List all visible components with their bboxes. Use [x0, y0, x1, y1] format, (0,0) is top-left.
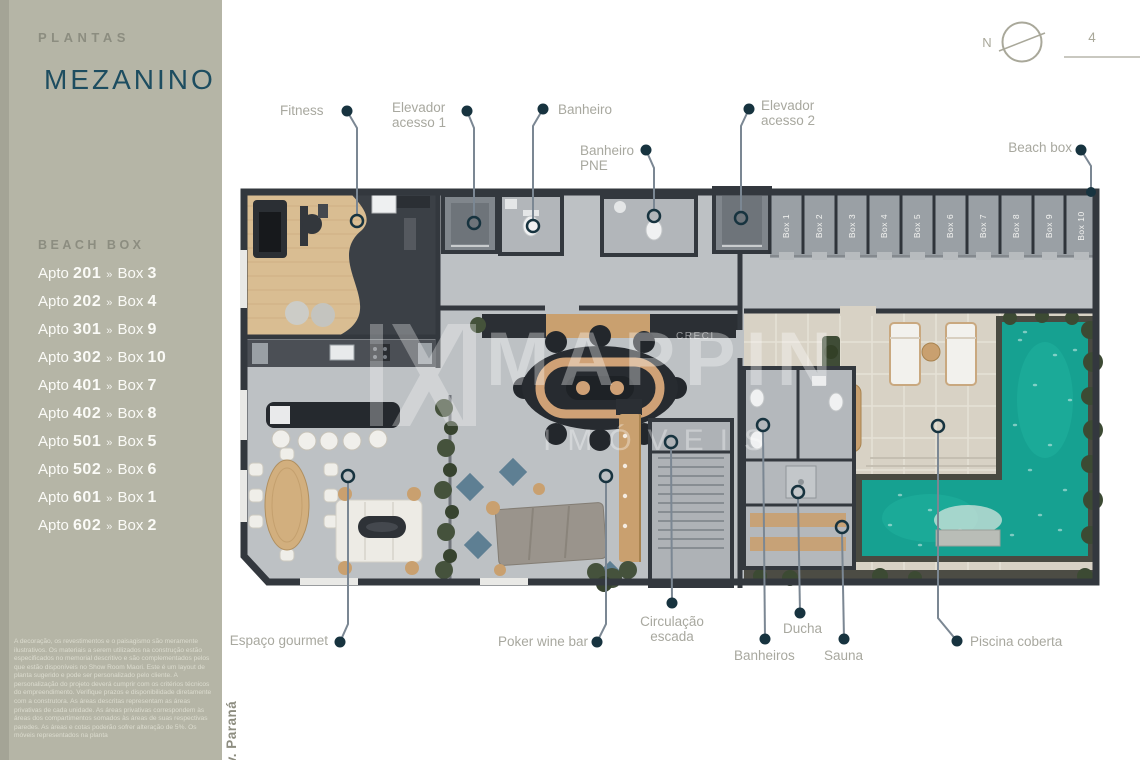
- lounge-sofa: [495, 502, 607, 565]
- leader-elevator2: [741, 109, 749, 213]
- elevator-2: [714, 188, 770, 252]
- beach-box-list: Apto 201 » Box 3Apto 202 » Box 4Apto 301…: [38, 260, 166, 540]
- wood-lounger: [843, 384, 861, 452]
- plan-label-elevator2: Elevador acesso 2: [761, 98, 815, 128]
- bar-stools: [272, 430, 387, 450]
- apto-list-item: Apto 402 » Box 8: [38, 400, 166, 428]
- apto-list-item: Apto 502 » Box 6: [38, 456, 166, 484]
- armchairs: [456, 458, 624, 589]
- plan-label-espaco-gourmet: Espaço gourmet: [225, 633, 328, 648]
- side-table: [922, 343, 940, 361]
- apto-list-item: Apto 302 » Box 10: [38, 344, 166, 372]
- plan-label-fitness: Fitness: [280, 103, 324, 118]
- beach-box-heading: BEACH BOX: [38, 238, 145, 252]
- box-stall-label: Box 8: [1011, 214, 1021, 238]
- toilet: [646, 220, 662, 240]
- sink: [614, 201, 626, 213]
- bar-counter: [266, 402, 400, 428]
- plan-label-banheiro: Banheiro: [558, 102, 612, 117]
- plan-label-poker-wine-bar: Poker wine bar: [490, 634, 588, 649]
- box-stall-label: Box 7: [978, 214, 988, 238]
- sun-lounger: [890, 323, 920, 385]
- plan-label-piscina: Piscina coberta: [970, 634, 1062, 649]
- pool-border: [856, 316, 1094, 562]
- fitness-room: [247, 192, 438, 368]
- apto-list-item: Apto 601 » Box 1: [38, 484, 166, 512]
- plants: [587, 561, 637, 592]
- exercise-ball: [285, 301, 309, 325]
- plan-label-beach-box: Beach box: [998, 140, 1072, 155]
- apto-list-item: Apto 501 » Box 5: [38, 428, 166, 456]
- plan-label-circulacao: Circulação escada: [630, 614, 714, 644]
- leader-ducha: [798, 498, 800, 613]
- plan-label-sauna: Sauna: [824, 648, 863, 663]
- apto-list-item: Apto 401 » Box 7: [38, 372, 166, 400]
- leader-banheiro: [533, 109, 543, 221]
- leader-sauna: [842, 533, 844, 639]
- plan-label-banheiros: Banheiros: [734, 648, 795, 663]
- plan-label-ducha: Ducha: [783, 621, 822, 636]
- sink: [505, 199, 517, 209]
- compass-n-label: N: [982, 35, 991, 50]
- dumbbell-rack: [386, 196, 430, 208]
- gourmet-kitchen-counter: [247, 340, 436, 367]
- page-number: 4: [1088, 30, 1096, 45]
- disclaimer-text: A decoração, os revestimentos e o paisag…: [14, 638, 212, 741]
- leader-banheiro-pne: [646, 150, 654, 211]
- elliptical-machine: [300, 206, 308, 246]
- exercise-ball: [311, 303, 335, 327]
- box-stall-label: Box 2: [814, 214, 824, 238]
- sauna-bench: [750, 513, 846, 527]
- shower: [786, 466, 816, 498]
- leader-beachbox: [1081, 150, 1091, 190]
- sofa: [336, 500, 422, 562]
- north-compass: N: [982, 23, 1045, 62]
- kitchen-sink: [330, 345, 354, 360]
- planter-divider: [434, 395, 459, 582]
- toilet: [523, 216, 539, 236]
- plant: [470, 317, 486, 333]
- watermark-brand: MAPPIN: [486, 316, 842, 403]
- box-stall-label: Box 5: [912, 214, 922, 238]
- apto-list-item: Apto 202 » Box 4: [38, 288, 166, 316]
- apto-list-item: Apto 201 » Box 3: [38, 260, 166, 288]
- apto-list-item: Apto 301 » Box 9: [38, 316, 166, 344]
- sun-lounger: [946, 323, 976, 385]
- pool-water: [862, 322, 1088, 556]
- leader-elevator1: [467, 111, 474, 218]
- apto-list-item: Apto 602 » Box 2: [38, 512, 166, 540]
- wine-lounge: [456, 458, 624, 589]
- pool-bench: [936, 530, 1000, 546]
- leader-circulacao: [671, 448, 672, 603]
- street-label: Av. Paraná: [224, 701, 239, 760]
- box-stall-label: Box 9: [1044, 214, 1054, 238]
- dining-chairs: [249, 448, 338, 561]
- leader-gourmet: [340, 482, 348, 642]
- weight-bench: [404, 218, 416, 250]
- waterfall: [934, 505, 1002, 535]
- poolside-plants: [753, 568, 1093, 586]
- leader-piscina: [938, 432, 957, 641]
- coffee-table: [358, 516, 406, 538]
- box-stall-label: Box 6: [945, 214, 955, 238]
- treadmill: [253, 200, 287, 258]
- sauna-bench: [750, 537, 846, 551]
- cooktop: [370, 344, 390, 361]
- page-indicator: 4: [1064, 30, 1140, 57]
- dining-table: [265, 460, 309, 550]
- leader-banheiros: [763, 431, 765, 639]
- beach-box-stalls: Box 1 Box 2 Box 3 Box 4 Box 5 Box 6 Box …: [770, 192, 1098, 260]
- leader-fitness: [347, 111, 357, 216]
- wc-pne-room: [602, 197, 696, 255]
- sidebar: PLANTAS MEZANINO BEACH BOX Apto 201 » Bo…: [0, 0, 222, 760]
- watermark-subtitle: IMÓVEIS: [543, 424, 780, 458]
- gourmet-space: [249, 402, 422, 575]
- plan-label-banheiro-pne: Banheiro PNE: [580, 143, 634, 173]
- wc-room: [500, 195, 562, 254]
- box-stall-label: Box 10: [1076, 211, 1086, 240]
- section-label: PLANTAS: [38, 30, 130, 45]
- brochure-page: Box 1 Box 2 Box 3 Box 4 Box 5 Box 6 Box …: [0, 0, 1140, 760]
- page-title: MEZANINO: [44, 64, 216, 96]
- watermark-creci: CRECI: [676, 331, 715, 342]
- leader-poker: [597, 482, 606, 642]
- box-stall-label: Box 3: [847, 214, 857, 238]
- box-stall-label: Box 1: [781, 214, 791, 238]
- elevator-1: [443, 195, 497, 252]
- pool-hedge: [1003, 309, 1103, 544]
- plan-label-elevator1: Elevador acesso 1: [392, 100, 446, 130]
- box-stall-label: Box 4: [879, 214, 889, 238]
